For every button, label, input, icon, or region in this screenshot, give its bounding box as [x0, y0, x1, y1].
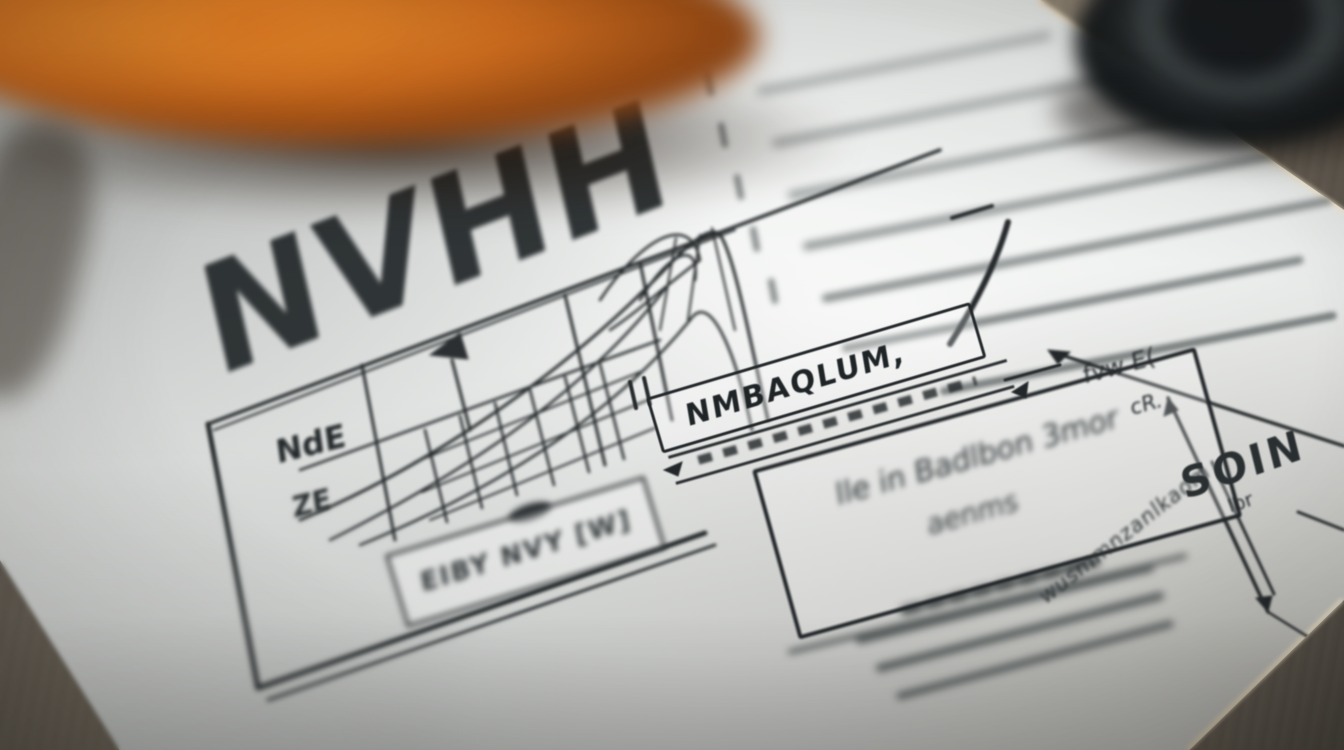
- ink-stroke: [900, 624, 1170, 696]
- ink-stroke: [952, 206, 992, 218]
- ink-stroke: [1256, 596, 1272, 612]
- depth-of-field-top: [0, 0, 1344, 130]
- ink-stroke: [640, 255, 696, 300]
- note-line-2: aenms: [925, 484, 1020, 542]
- ink-stroke: [1298, 512, 1344, 530]
- depth-of-field-bottom-left: [0, 450, 560, 750]
- ink-stroke: [565, 295, 605, 465]
- photo-scene: NVHH: [0, 0, 1344, 750]
- ink-stroke: [1005, 365, 1060, 380]
